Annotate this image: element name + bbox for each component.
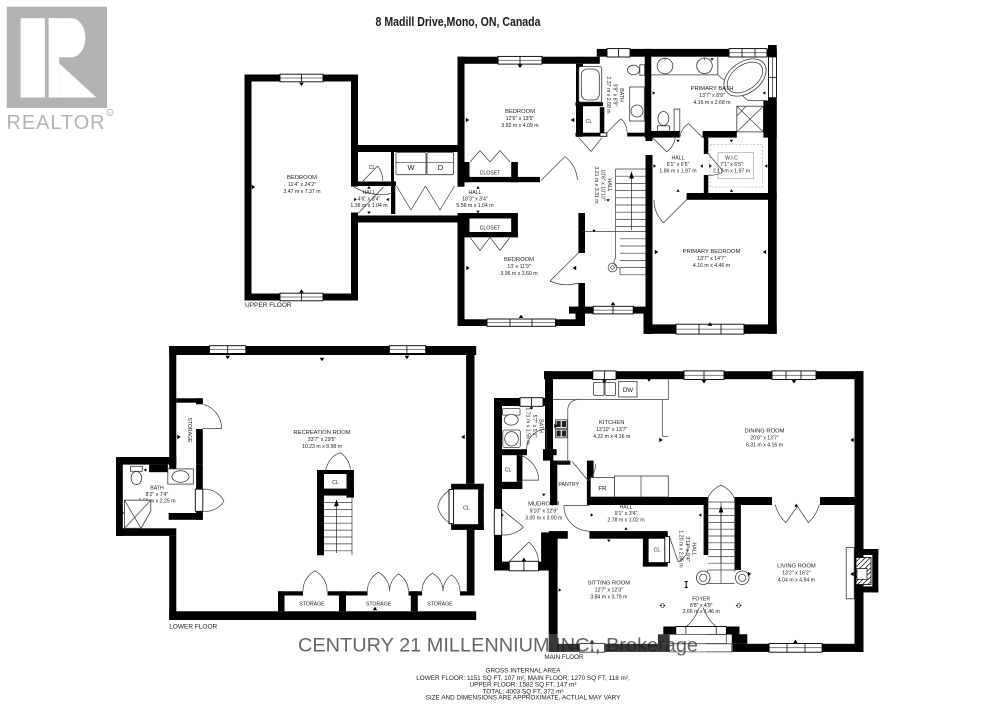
svg-text:3.96 m x 3.60 m: 3.96 m x 3.60 m: [500, 271, 537, 277]
svg-text:1.20 m x 2.86 m: 1.20 m x 2.86 m: [678, 530, 684, 567]
svg-text:3'11" x 9'4": 3'11" x 9'4": [684, 536, 690, 561]
svg-text:STORAGE: STORAGE: [186, 417, 192, 443]
svg-text:8'8" x 4'9": 8'8" x 4'9": [690, 603, 713, 609]
svg-text:BATH: BATH: [150, 486, 164, 492]
svg-text:9'10" x 12'9": 9'10" x 12'9": [530, 509, 559, 515]
svg-text:GROSS INTERNAL AREA: GROSS INTERNAL AREA: [485, 668, 561, 675]
svg-text:STORAGE: STORAGE: [427, 602, 453, 608]
svg-text:BEDROOM: BEDROOM: [504, 257, 534, 263]
svg-text:2.17 m x 1.97 m: 2.17 m x 1.97 m: [713, 169, 750, 175]
svg-text:W: W: [407, 163, 415, 172]
svg-text:STORAGE: STORAGE: [366, 602, 392, 608]
svg-text:BEDROOM: BEDROOM: [505, 109, 535, 115]
svg-text:3.84 m x 3.79 m: 3.84 m x 3.79 m: [590, 595, 627, 601]
svg-text:CLOSET: CLOSET: [480, 226, 502, 232]
svg-text:SITTING ROOM: SITTING ROOM: [588, 581, 631, 587]
svg-text:18'3" x 3'4": 18'3" x 3'4": [462, 197, 488, 203]
svg-text:BATH: BATH: [618, 88, 624, 102]
svg-text:13'7" x 14'7": 13'7" x 14'7": [697, 256, 726, 262]
svg-text:10'6" x 10'10": 10'6" x 10'10": [600, 169, 606, 200]
svg-text:2.78 m x 1.02 m: 2.78 m x 1.02 m: [607, 518, 644, 524]
svg-text:PRIMARY BEDROOM: PRIMARY BEDROOM: [683, 249, 741, 255]
svg-text:CENTURY 21 MILLENNIUM INC., Br: CENTURY 21 MILLENNIUM INC., Brokerage: [298, 635, 698, 657]
svg-text:33'7" x 29'5": 33'7" x 29'5": [308, 437, 337, 443]
svg-text:1.38 m x 1.04 m: 1.38 m x 1.04 m: [350, 203, 387, 209]
svg-text:4.16 m x 2.68 m: 4.16 m x 2.68 m: [693, 100, 730, 106]
svg-text:20'8" x 13'7": 20'8" x 13'7": [750, 436, 779, 442]
svg-text:3.82 m x 4.09 m: 3.82 m x 4.09 m: [501, 123, 538, 129]
svg-text:HALL: HALL: [606, 179, 612, 192]
svg-text:3.47 m x 7.37 m: 3.47 m x 7.37 m: [283, 189, 320, 195]
svg-text:HALL: HALL: [620, 505, 633, 511]
svg-text:12'7" x 12'3": 12'7" x 12'3": [595, 588, 624, 594]
svg-text:BEDROOM: BEDROOM: [287, 175, 317, 181]
svg-text:PRIMARY BATH: PRIMARY BATH: [691, 86, 734, 92]
svg-text:4.22 m x 4.16 m: 4.22 m x 4.16 m: [593, 434, 630, 440]
svg-text:10.23 m x 8.98 m: 10.23 m x 8.98 m: [302, 444, 342, 450]
svg-text:12'6" x 13'5": 12'6" x 13'5": [506, 116, 535, 122]
svg-text:13'10" x 13'7": 13'10" x 13'7": [596, 427, 627, 433]
svg-text:5.56 m x 1.04 m: 5.56 m x 1.04 m: [456, 203, 493, 209]
svg-text:CL: CL: [332, 480, 339, 486]
svg-text:CL: CL: [586, 119, 593, 125]
svg-text:FR: FR: [598, 486, 607, 493]
svg-text:W.I.C: W.I.C: [725, 156, 738, 162]
svg-text:FOYER: FOYER: [692, 597, 710, 603]
svg-text:HALL: HALL: [691, 543, 697, 556]
svg-text:RECREATION ROOM: RECREATION ROOM: [293, 430, 350, 436]
svg-text:HALL: HALL: [363, 190, 376, 196]
svg-text:KITCHEN: KITCHEN: [599, 420, 624, 426]
svg-text:SIZE AND DIMENSIONS ARE APPROX: SIZE AND DIMENSIONS ARE APPROXIMATE, ACT…: [426, 695, 622, 702]
svg-text:REALTOR: REALTOR: [7, 111, 106, 134]
svg-text:13'2" x 16'2": 13'2" x 16'2": [782, 571, 811, 577]
svg-text:6.31 m x 4.16 m: 6.31 m x 4.16 m: [746, 443, 783, 449]
svg-text:CL: CL: [463, 506, 470, 512]
svg-text:1.86 m x 1.97 m: 1.86 m x 1.97 m: [659, 169, 696, 175]
svg-text:3.21 m x 3.31 m: 3.21 m x 3.31 m: [593, 166, 599, 203]
svg-text:6'1" x 6'5": 6'1" x 6'5": [667, 162, 690, 168]
svg-text:8'2" x 7'4": 8'2" x 7'4": [146, 492, 169, 498]
svg-text:CL: CL: [369, 165, 376, 171]
svg-text:13'7" x 8'9": 13'7" x 8'9": [699, 93, 725, 99]
svg-text:HALL: HALL: [469, 190, 482, 196]
svg-text:UPPER FLOOR: UPPER FLOOR: [245, 302, 292, 309]
svg-text:CL: CL: [505, 468, 512, 474]
svg-text:11'4" x 24'2": 11'4" x 24'2": [288, 182, 316, 188]
svg-text:2.37 m x 2.68 m: 2.37 m x 2.68 m: [605, 76, 611, 113]
svg-text:2.66 m x 1.46 m: 2.66 m x 1.46 m: [683, 609, 720, 615]
svg-text:HALL: HALL: [672, 156, 685, 162]
svg-text:LOWER FLOOR: LOWER FLOOR: [169, 624, 217, 631]
svg-text:4.16 m x 4.46 m: 4.16 m x 4.46 m: [693, 263, 730, 269]
svg-text:9'1" x 3'4": 9'1" x 3'4": [615, 511, 638, 517]
svg-text:LIVING ROOM: LIVING ROOM: [777, 564, 816, 570]
svg-text:DINING ROOM: DINING ROOM: [745, 429, 785, 435]
svg-text:CL: CL: [654, 548, 661, 554]
svg-text:4.04 m x 4.94 m: 4.04 m x 4.94 m: [778, 578, 815, 584]
svg-text:STORAGE: STORAGE: [299, 602, 325, 608]
svg-text:CLOSET: CLOSET: [480, 171, 502, 177]
svg-text:13' x 11'9": 13' x 11'9": [507, 264, 530, 270]
svg-text:8 Madill Drive,Mono, ON, Canad: 8 Madill Drive,Mono, ON, Canada: [376, 14, 542, 29]
svg-text:3.00 m x 3.90 m: 3.00 m x 3.90 m: [525, 516, 562, 522]
svg-text:4'6" x 3'4": 4'6" x 3'4": [358, 197, 381, 203]
svg-text:7'1" x 6'5": 7'1" x 6'5": [720, 162, 743, 168]
svg-text:D: D: [438, 163, 444, 172]
svg-text:PANTRY: PANTRY: [558, 482, 579, 488]
svg-text:DW: DW: [623, 387, 633, 394]
svg-text:3'9" x 8'9": 3'9" x 8'9": [612, 84, 618, 107]
